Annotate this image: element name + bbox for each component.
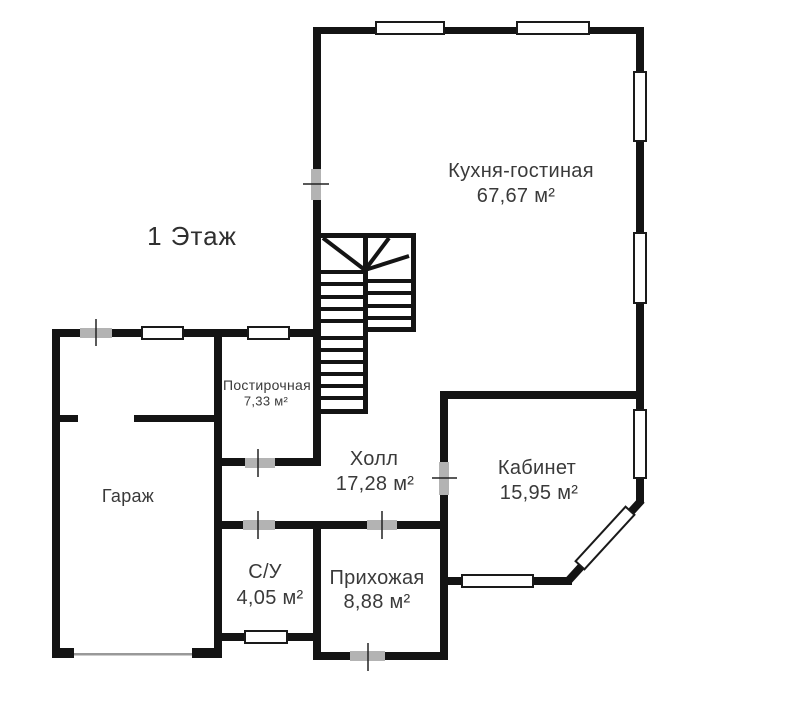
room-area-hall: 17,28 м² xyxy=(336,474,414,494)
wall-study-left xyxy=(440,391,448,660)
room-label-wc: С/У xyxy=(248,562,282,582)
room-label-study: Кабинет xyxy=(498,458,576,478)
room-label-laundry: Постирочная xyxy=(223,378,311,392)
staircase xyxy=(313,233,416,414)
stairs-center-stringer xyxy=(363,233,368,414)
stairs-lower-flight-bottom xyxy=(316,409,368,414)
window-wc-bottom xyxy=(245,631,287,643)
floor-title: 1 Этаж xyxy=(147,223,237,249)
window-study-bay-diagonal xyxy=(576,507,635,570)
room-label-entry: Прихожая xyxy=(329,568,424,588)
room-area-study: 15,95 м² xyxy=(500,483,578,503)
wall-garage-right xyxy=(214,329,222,658)
room-area-laundry: 7,33 м² xyxy=(244,395,288,408)
floor-plan: 1 Этаж Кухня-гостиная 67,67 м² Постирочн… xyxy=(0,0,803,718)
wall-garage-bottom-left-cap xyxy=(52,648,74,658)
window-kitchen-right-1 xyxy=(634,72,646,141)
room-label-hall: Холл xyxy=(350,449,398,469)
wall-garage-partition-left xyxy=(52,415,78,422)
wall-laundry-right xyxy=(313,329,321,466)
room-label-kitchen: Кухня-гостиная xyxy=(448,161,594,181)
stairs-lower-flight-treads xyxy=(321,338,363,398)
door-wc-top xyxy=(243,520,275,530)
stairs-upper-flight-bottom xyxy=(363,327,416,332)
room-label-garage: Гараж xyxy=(102,487,154,505)
room-area-wc: 4,05 м² xyxy=(237,588,304,608)
window-laundry-top xyxy=(248,327,289,339)
window-kitchen-top-1 xyxy=(376,22,444,34)
wall-kitchen-top xyxy=(313,27,644,34)
walls xyxy=(52,27,644,660)
stairs-left-flight-treads xyxy=(321,272,363,321)
stairs-right-flight-treads xyxy=(368,281,411,318)
room-area-entry: 8,88 м² xyxy=(344,592,411,612)
window-kitchen-top-2 xyxy=(517,22,589,34)
garage-door-opening-line xyxy=(74,653,192,656)
wall-study-top xyxy=(440,391,644,399)
wall-garage-left xyxy=(52,329,60,658)
wall-wc-entry-divider xyxy=(313,521,321,660)
door-laundry-bottom xyxy=(245,458,275,468)
window-study-bottom xyxy=(462,575,533,587)
room-area-kitchen: 67,67 м² xyxy=(477,186,555,206)
stairs-right-edge xyxy=(411,233,416,332)
window-kitchen-right-2 xyxy=(634,233,646,303)
window-study-right xyxy=(634,410,646,478)
wall-garage-partition-right xyxy=(134,415,222,422)
window-garage-top xyxy=(142,327,183,339)
